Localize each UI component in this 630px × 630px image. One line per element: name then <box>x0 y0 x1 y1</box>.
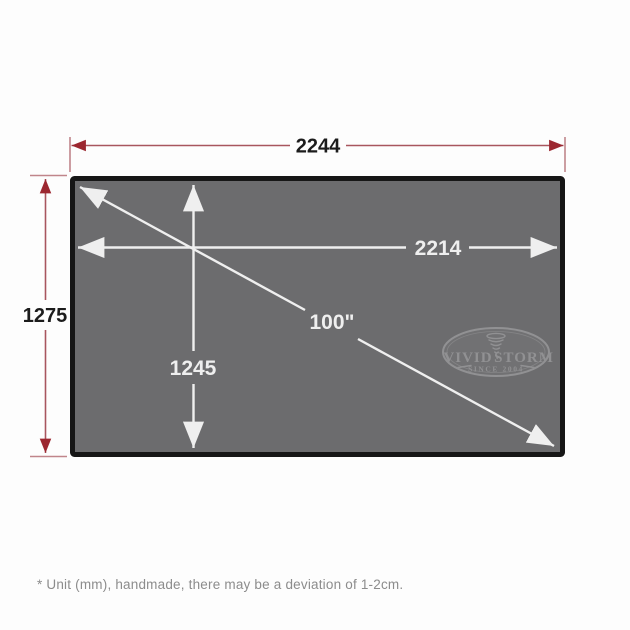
outer-height-dimension-value: 1275 <box>23 305 68 327</box>
logo-tagline: SINCE 2004 <box>468 365 524 374</box>
unit-footnote: * Unit (mm), handmade, there may be a de… <box>37 577 403 592</box>
screen-dimension-diagram: 2244 1275 2214 1245 100" <box>0 0 630 630</box>
dimension-diagram-svg: 2244 1275 2214 1245 100" <box>0 0 630 630</box>
viewing-height-dimension-value: 1245 <box>170 357 217 380</box>
outer-width-dimension-value: 2244 <box>296 136 341 158</box>
outer-height-dimension: 1275 <box>23 176 68 457</box>
outer-width-dimension: 2244 <box>70 136 565 173</box>
diagonal-dimension-value: 100" <box>310 311 355 334</box>
viewing-width-dimension-value: 2214 <box>415 237 462 260</box>
